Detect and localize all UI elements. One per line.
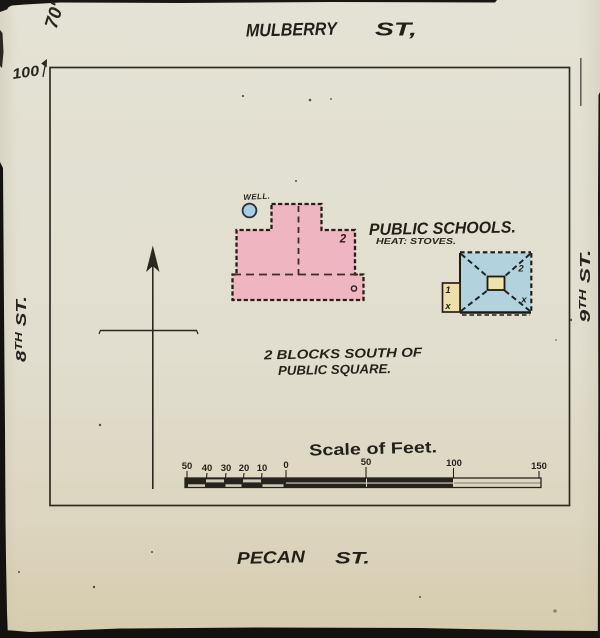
svg-text:MULBERRY: MULBERRY xyxy=(246,19,339,41)
svg-text:HEAT: STOVES.: HEAT: STOVES. xyxy=(376,236,456,246)
svg-text:150: 150 xyxy=(531,461,547,472)
svg-text:WELL.: WELL. xyxy=(243,192,270,202)
svg-text:20: 20 xyxy=(239,463,250,474)
svg-text:50: 50 xyxy=(182,461,193,472)
svg-text:40: 40 xyxy=(202,463,213,474)
svg-text:30: 30 xyxy=(221,463,232,474)
svg-text:1: 1 xyxy=(445,285,450,296)
svg-text:ST,: ST, xyxy=(375,20,417,40)
svg-text:100: 100 xyxy=(446,458,462,469)
svg-text:2 BLOCKS SOUTH OF: 2 BLOCKS SOUTH OF xyxy=(263,345,424,363)
svg-text:PUBLIC SQUARE.: PUBLIC SQUARE. xyxy=(278,361,391,378)
svg-text:50: 50 xyxy=(361,457,372,468)
svg-text:2: 2 xyxy=(517,264,524,275)
svg-text:9TH ST.: 9TH ST. xyxy=(577,250,594,323)
svg-text:ST.: ST. xyxy=(335,549,370,568)
svg-text:x: x xyxy=(444,301,451,312)
svg-text:Scale of Feet.: Scale of Feet. xyxy=(309,439,437,459)
svg-text:2: 2 xyxy=(339,234,347,246)
svg-text:x: x xyxy=(520,295,527,306)
svg-text:10: 10 xyxy=(257,463,268,474)
svg-text:8TH ST.: 8TH ST. xyxy=(13,296,30,362)
svg-text:PECAN: PECAN xyxy=(237,547,306,568)
svg-text:0: 0 xyxy=(283,460,288,471)
